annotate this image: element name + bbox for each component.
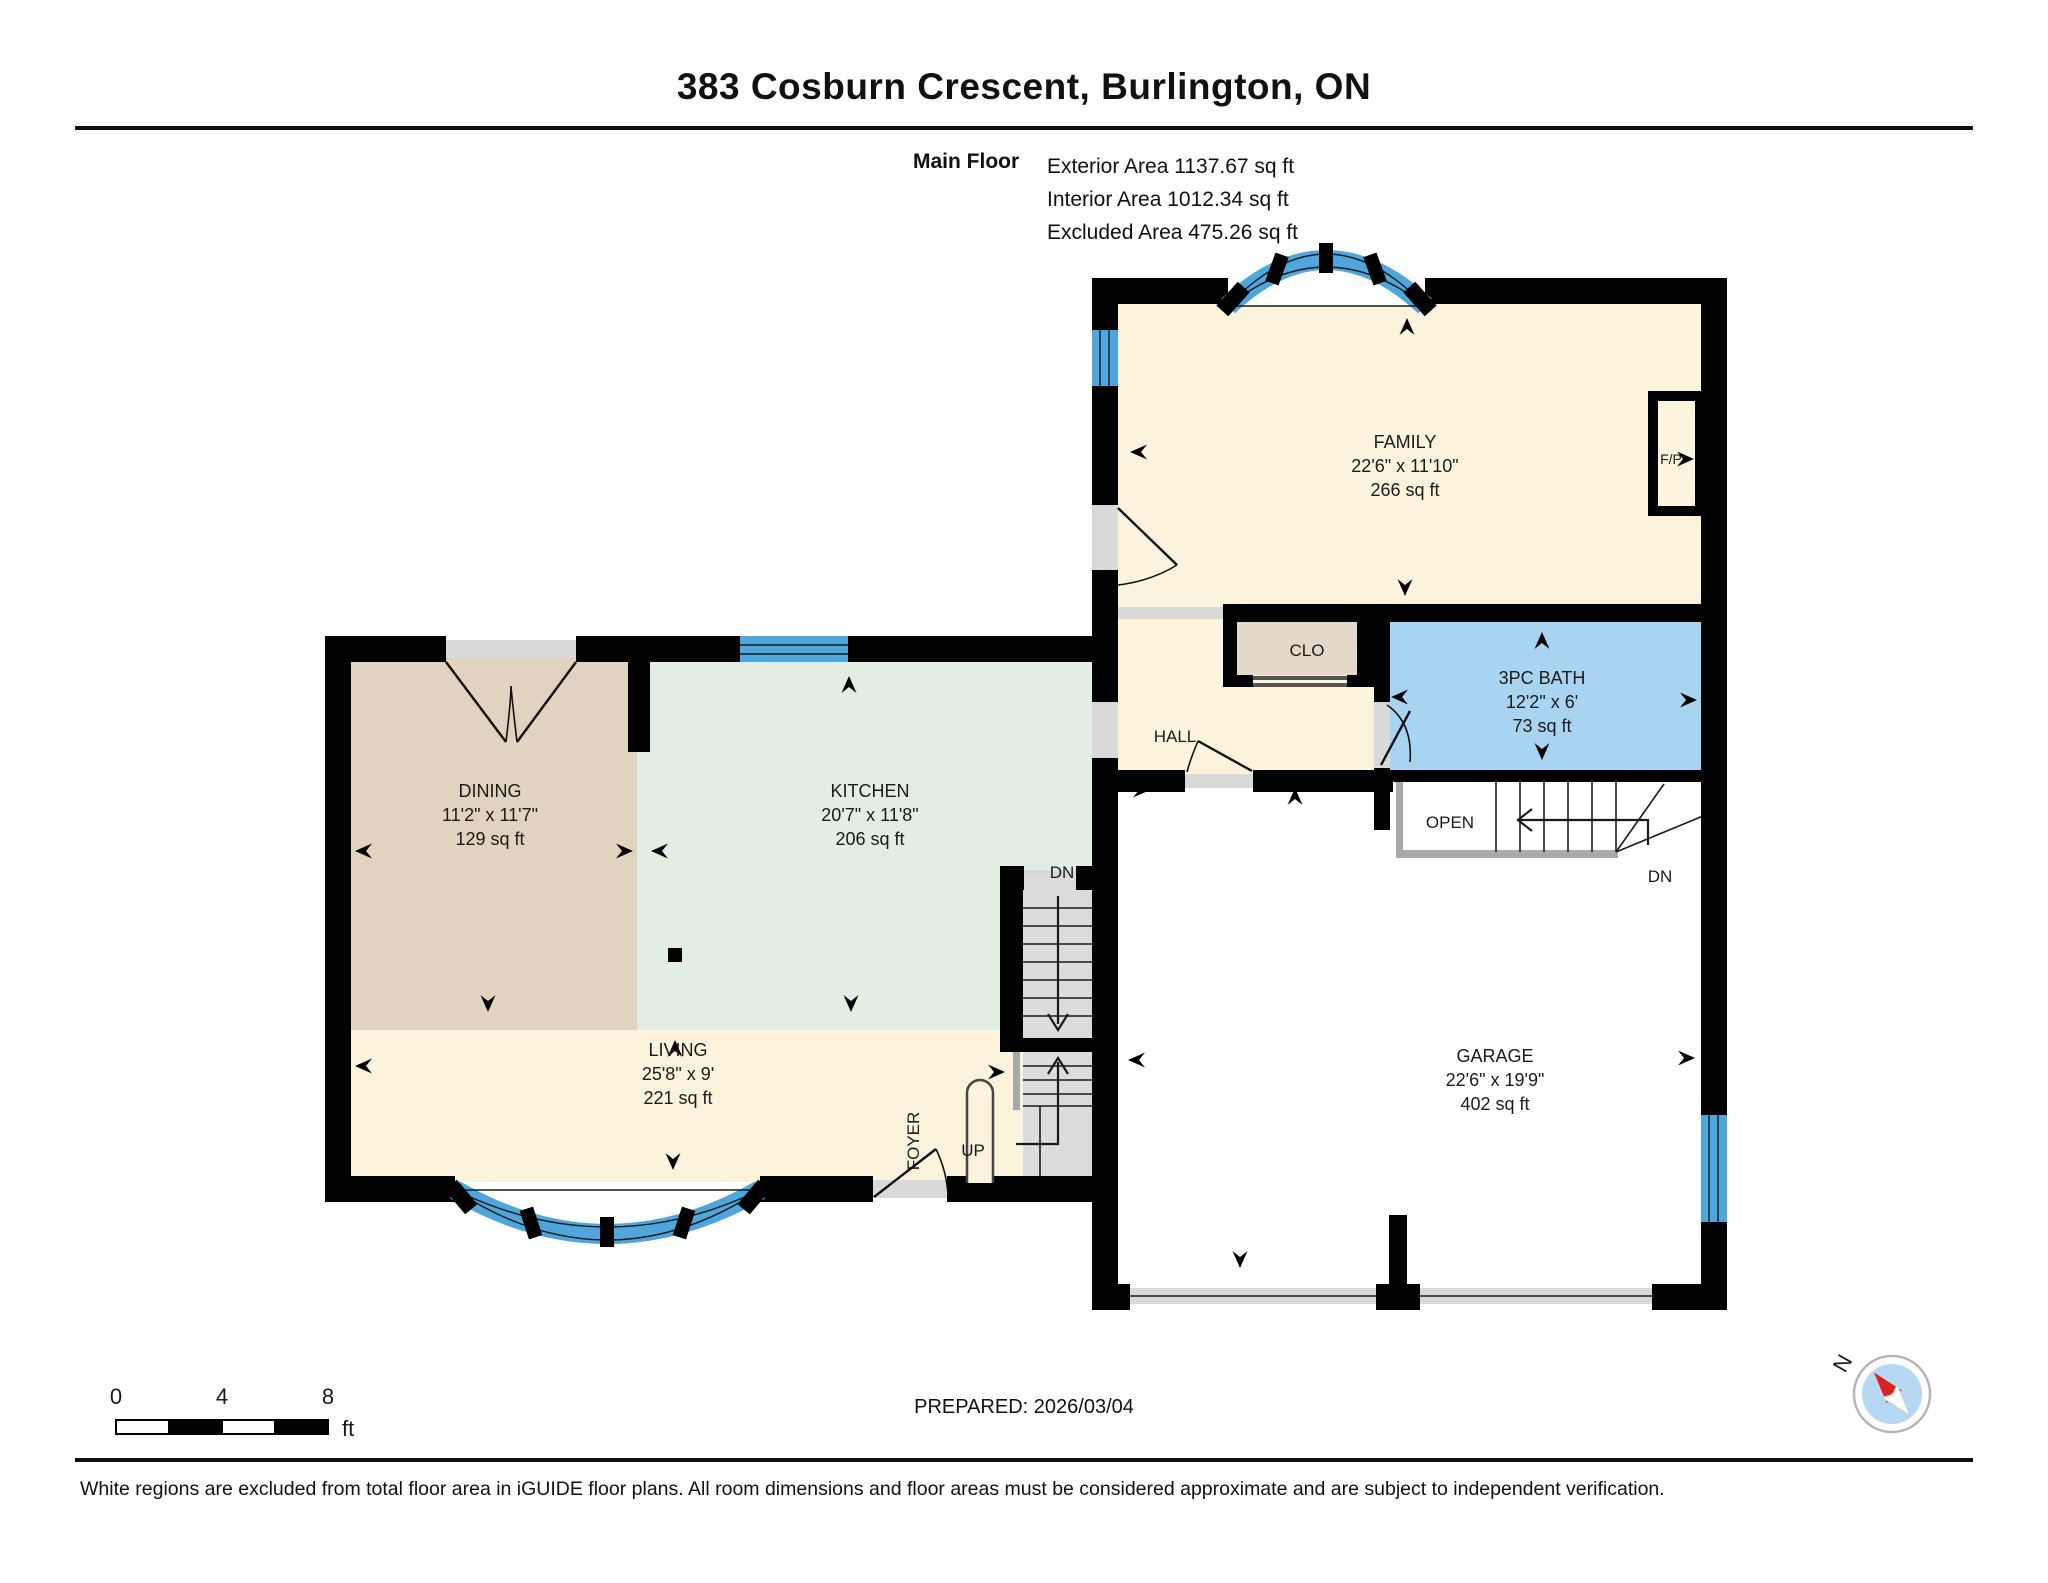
family-window [1092, 330, 1118, 386]
foyer-closet-door [967, 1080, 993, 1183]
bath-dims: 12'2" x 6' [1506, 692, 1578, 712]
dimension-arrow [1233, 1251, 1248, 1268]
bath-name: 3PC BATH [1499, 668, 1586, 688]
living-area: 221 sq ft [643, 1088, 712, 1108]
hall-label: HALL [1154, 727, 1197, 746]
garage-area: 402 sq ft [1460, 1094, 1529, 1114]
living-dims: 25'8" x 9' [642, 1064, 714, 1084]
room-family [1105, 295, 1705, 610]
living-name: LIVING [648, 1040, 707, 1060]
dining-name: DINING [459, 781, 522, 801]
open-label: OPEN [1426, 813, 1474, 832]
family-bay-window [1216, 243, 1436, 316]
foyer-label: FOYER [904, 1112, 923, 1171]
garage-dims: 22'6" x 19'9" [1446, 1070, 1545, 1090]
floorplan-drawing: F/P [0, 0, 2048, 1583]
family-area: 266 sq ft [1370, 480, 1439, 500]
kitchen-area: 206 sq ft [835, 829, 904, 849]
disclaimer-text: White regions are excluded from total fl… [80, 1478, 1940, 1501]
scale-tick-8: 8 [322, 1384, 334, 1409]
kitchen-name: KITCHEN [830, 781, 909, 801]
dining-dims: 11'2" x 11'7" [442, 805, 538, 825]
bath-area: 73 sq ft [1512, 716, 1571, 736]
dn-center-label: DN [1050, 863, 1075, 882]
prepared-date: PREPARED: 2026/03/04 [824, 1396, 1224, 1419]
garage-name: GARAGE [1456, 1046, 1533, 1066]
column-post [668, 948, 682, 962]
fireplace: F/P [1648, 391, 1705, 516]
scale-tick-0: 0 [110, 1384, 122, 1409]
stairs-center [1013, 878, 1092, 1180]
kitchen-dims: 20'7" x 11'8" [821, 805, 918, 825]
dimension-arrow [1678, 1051, 1695, 1066]
dn-right-label: DN [1648, 867, 1673, 886]
family-dims: 22'6" x 11'10" [1351, 456, 1458, 476]
living-bay-window [445, 1180, 771, 1247]
kitchen-window [740, 636, 848, 662]
scale-bar: 0 4 8 ft [110, 1384, 354, 1441]
compass-icon: N [1828, 1350, 1930, 1432]
scale-unit: ft [342, 1416, 354, 1441]
garage-window [1701, 1115, 1727, 1222]
up-label: UP [961, 1141, 985, 1160]
scale-tick-4: 4 [216, 1384, 228, 1409]
floorplan-page: 383 Cosburn Crescent, Burlington, ON Mai… [0, 0, 2048, 1583]
dining-area: 129 sq ft [455, 829, 524, 849]
closet-label: CLO [1290, 641, 1325, 660]
family-name: FAMILY [1374, 432, 1437, 452]
dimension-arrow [1128, 1053, 1145, 1068]
compass-north-label: N [1828, 1350, 1858, 1376]
footer-divider [75, 1458, 1973, 1462]
